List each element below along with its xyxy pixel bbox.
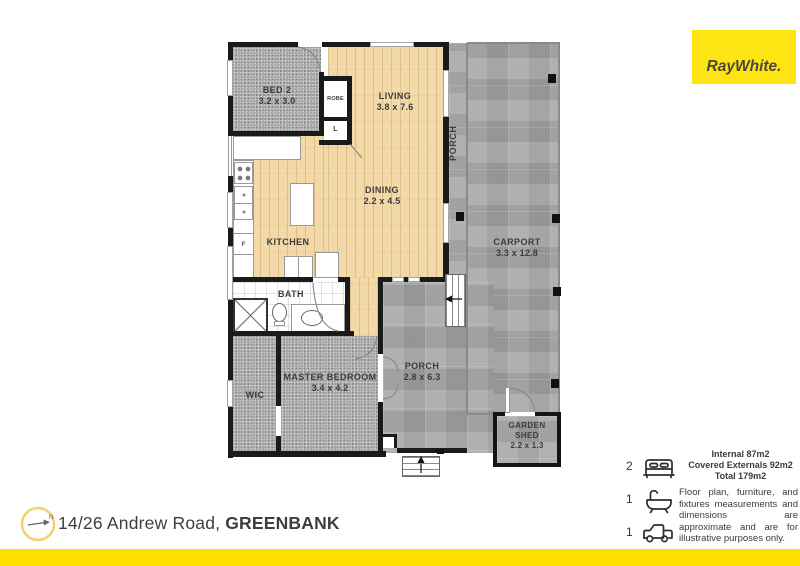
room-label-bath: BATH [261, 289, 321, 300]
address-street: 14/26 Andrew Road, [58, 513, 220, 533]
wall [394, 437, 397, 448]
wall [228, 451, 386, 457]
vanity-sink [301, 310, 323, 326]
window [370, 42, 414, 47]
compass-icon: N [19, 505, 57, 543]
kitchen-island [290, 183, 314, 226]
window [227, 192, 233, 228]
area-summary: Internal 87m2 Covered Externals 92m2 Tot… [681, 449, 800, 482]
baths-count: 1 [626, 492, 633, 506]
wall [228, 228, 233, 246]
wall [322, 117, 350, 121]
shed-door-leaf [505, 387, 510, 413]
carport-post [551, 379, 559, 388]
wall [319, 140, 352, 145]
wall [345, 282, 350, 333]
stairs-side [445, 274, 466, 327]
room-label-garden-shed: GARDEN SHED2.2 x 1.3 [496, 421, 558, 451]
porch-notch [383, 437, 394, 448]
room-label-kitchen: KITCHEN [253, 237, 323, 248]
room-label-linen: L [323, 126, 348, 133]
toilet [272, 303, 287, 322]
carport-post [456, 212, 464, 221]
raywhite-logo-text: RayWhite. [692, 58, 796, 76]
wall [276, 436, 281, 451]
room-label-porch-rear: PORCH2.8 x 6.3 [382, 361, 462, 383]
steps-front [402, 456, 440, 477]
wall [322, 42, 370, 47]
carport-edge-top [467, 42, 560, 44]
brand-bottom-bar [0, 549, 800, 566]
kitchen-sink [234, 186, 253, 220]
toilet-base [274, 321, 285, 326]
disclaimer-text: Floor plan, furniture, and fixtures meas… [679, 487, 798, 545]
window [227, 246, 233, 300]
wall [378, 277, 383, 336]
wall [228, 331, 354, 336]
address-suburb: GREENBANK [225, 513, 340, 533]
window [392, 277, 404, 282]
wall [228, 300, 233, 380]
wall [228, 277, 313, 282]
shower [233, 298, 268, 333]
area-total: Total 179m2 [681, 471, 800, 482]
floorplan-page: F [0, 0, 800, 566]
area-covered-externals: Covered Externals 92m2 [681, 460, 800, 471]
floor-hallway [350, 278, 378, 336]
fridge-label: F [242, 241, 246, 248]
wall [397, 448, 467, 453]
wall [228, 42, 298, 47]
stove-cooktop [234, 162, 253, 184]
wall [228, 42, 233, 60]
wall [228, 176, 233, 192]
kitchen-bench [233, 136, 301, 160]
room-label-master: MASTER BEDROOM3.4 x 4.2 [283, 372, 377, 394]
window [443, 203, 449, 243]
raywhite-logo: RayWhite. [692, 30, 796, 84]
room-label-porch-side: PORCH [448, 112, 466, 174]
property-address: 14/26 Andrew Road,GREENBANK [58, 513, 340, 534]
carport-post [548, 74, 556, 83]
porch-post [437, 449, 444, 454]
wall [228, 131, 324, 136]
room-label-bed2: BED 23.2 x 3.0 [233, 85, 321, 107]
area-internal: Internal 87m2 [681, 449, 800, 460]
bed-icon [642, 455, 676, 481]
bath-icon [644, 488, 674, 514]
room-label-wic: WIC [233, 390, 277, 401]
room-label-dining: DINING2.2 x 4.5 [332, 185, 432, 207]
room-label-living: LIVING3.8 x 7.6 [345, 91, 445, 113]
fridge: F [233, 233, 254, 255]
wall [378, 331, 383, 354]
carport-post [553, 287, 561, 296]
room-label-carport: CARPORT3.3 x 12.8 [471, 237, 563, 259]
carport-edge-bottom [467, 413, 495, 415]
beds-count: 2 [626, 459, 633, 473]
carport-edge-right [558, 43, 560, 415]
carport-post [552, 214, 560, 223]
carport-edge-left [466, 43, 468, 415]
appliance-unit2 [315, 252, 339, 278]
svg-text:N: N [49, 515, 53, 521]
window [408, 277, 420, 282]
car-icon [641, 520, 675, 546]
appliance-unit [284, 256, 313, 278]
cars-count: 1 [626, 525, 633, 539]
